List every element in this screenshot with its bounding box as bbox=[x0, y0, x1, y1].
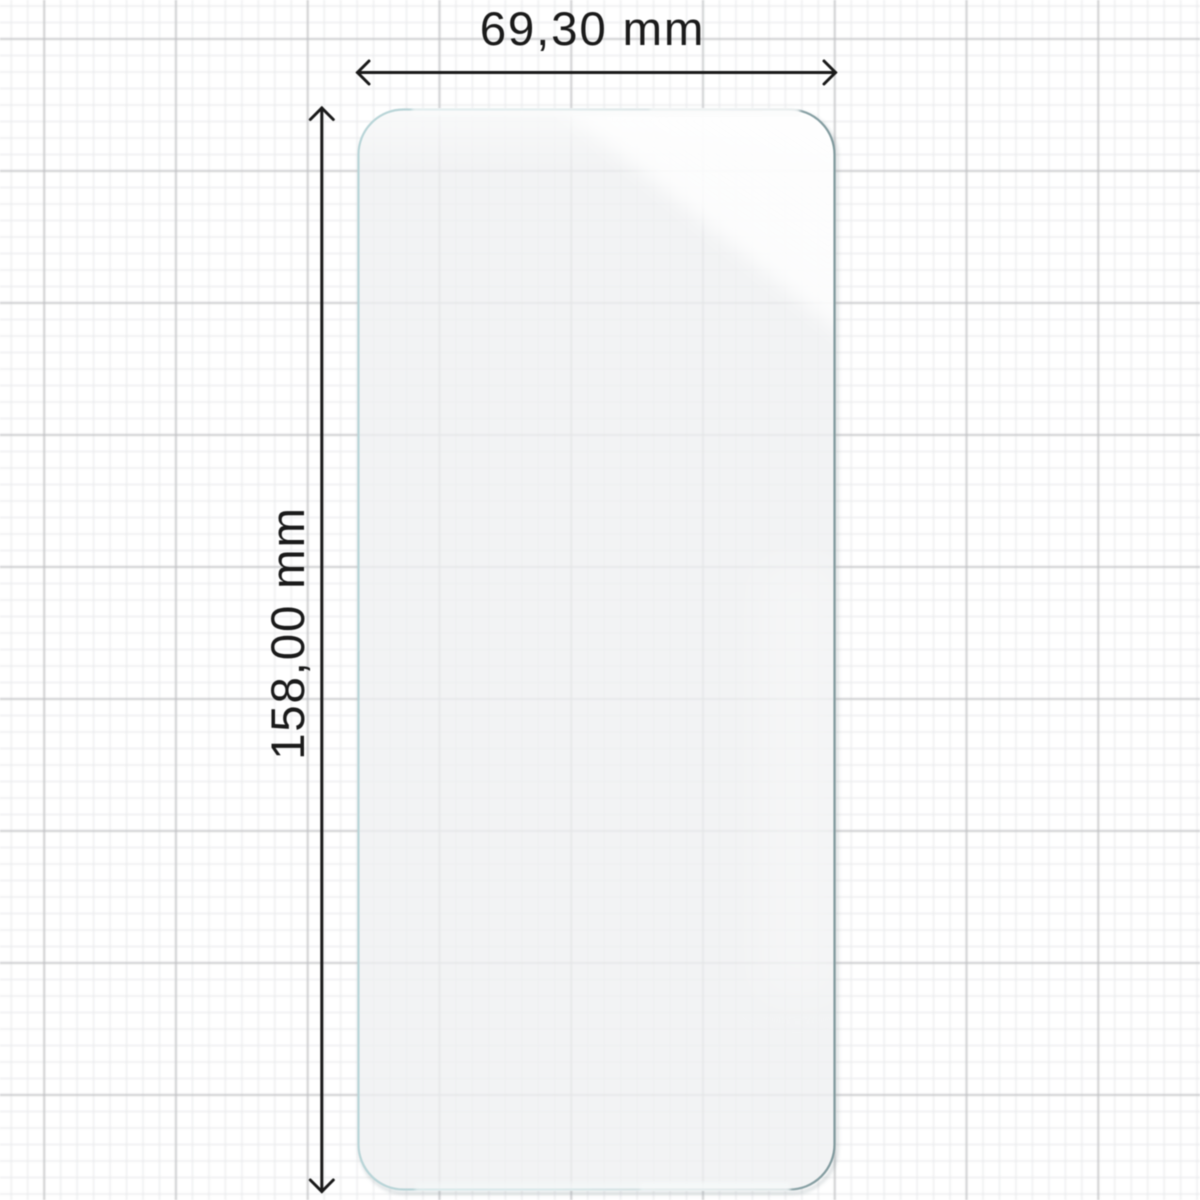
svg-text:158,00 mm: 158,00 mm bbox=[262, 506, 315, 760]
svg-text:69,30 mm: 69,30 mm bbox=[480, 3, 706, 56]
